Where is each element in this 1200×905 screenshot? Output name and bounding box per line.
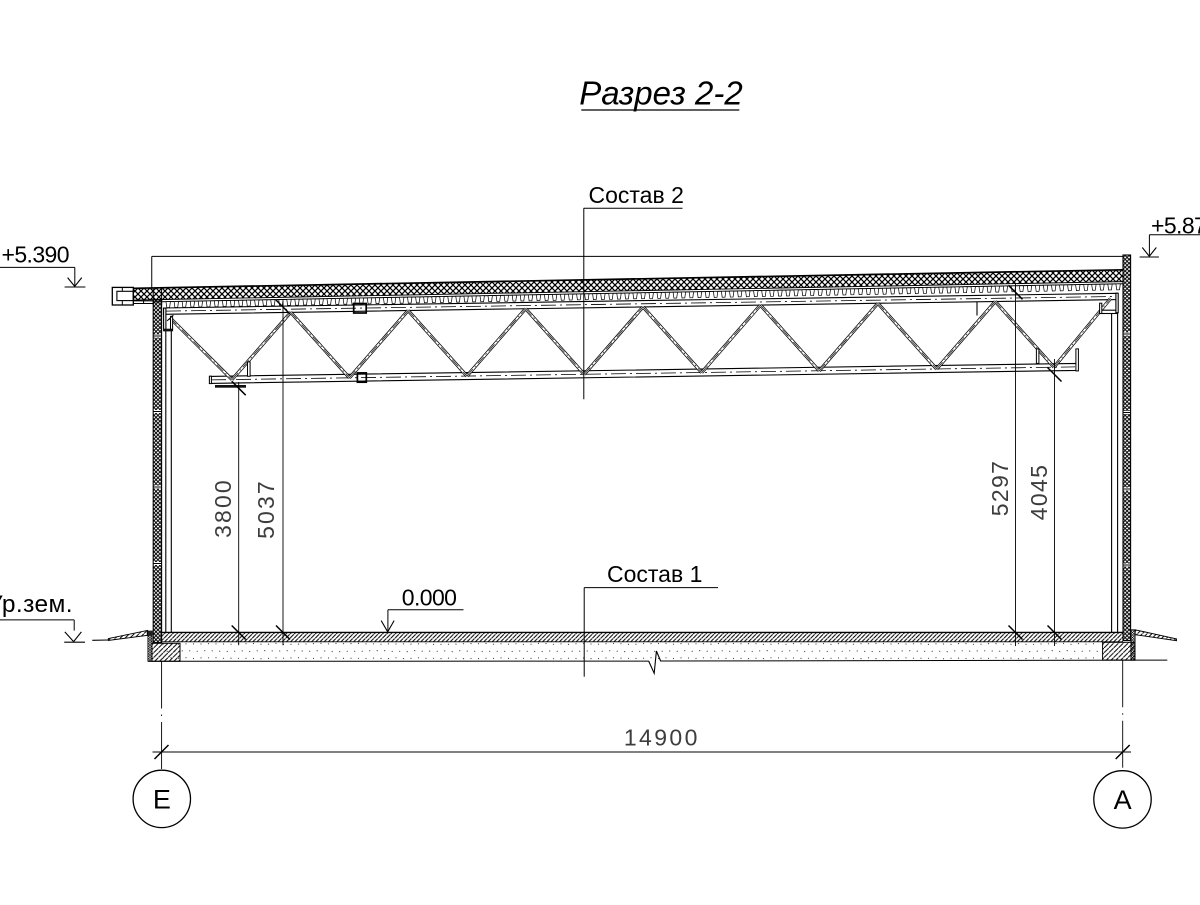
svg-text:5037: 5037	[253, 479, 279, 539]
svg-text:А: А	[1114, 785, 1132, 815]
svg-text:5297: 5297	[987, 460, 1013, 516]
svg-text:Е: Е	[153, 785, 171, 815]
svg-text:+5.390: +5.390	[2, 241, 69, 267]
svg-text:Состав 1: Состав 1	[607, 561, 702, 587]
svg-text:Состав 2: Состав 2	[589, 182, 684, 208]
svg-text:4045: 4045	[1026, 464, 1052, 520]
svg-text:Ур.зем.: Ур.зем.	[0, 591, 73, 618]
svg-text:3800: 3800	[210, 478, 236, 538]
svg-text:14900: 14900	[624, 725, 700, 751]
svg-text:0.000: 0.000	[402, 585, 457, 611]
svg-text:Разрез 2-2: Разрез 2-2	[579, 75, 743, 112]
